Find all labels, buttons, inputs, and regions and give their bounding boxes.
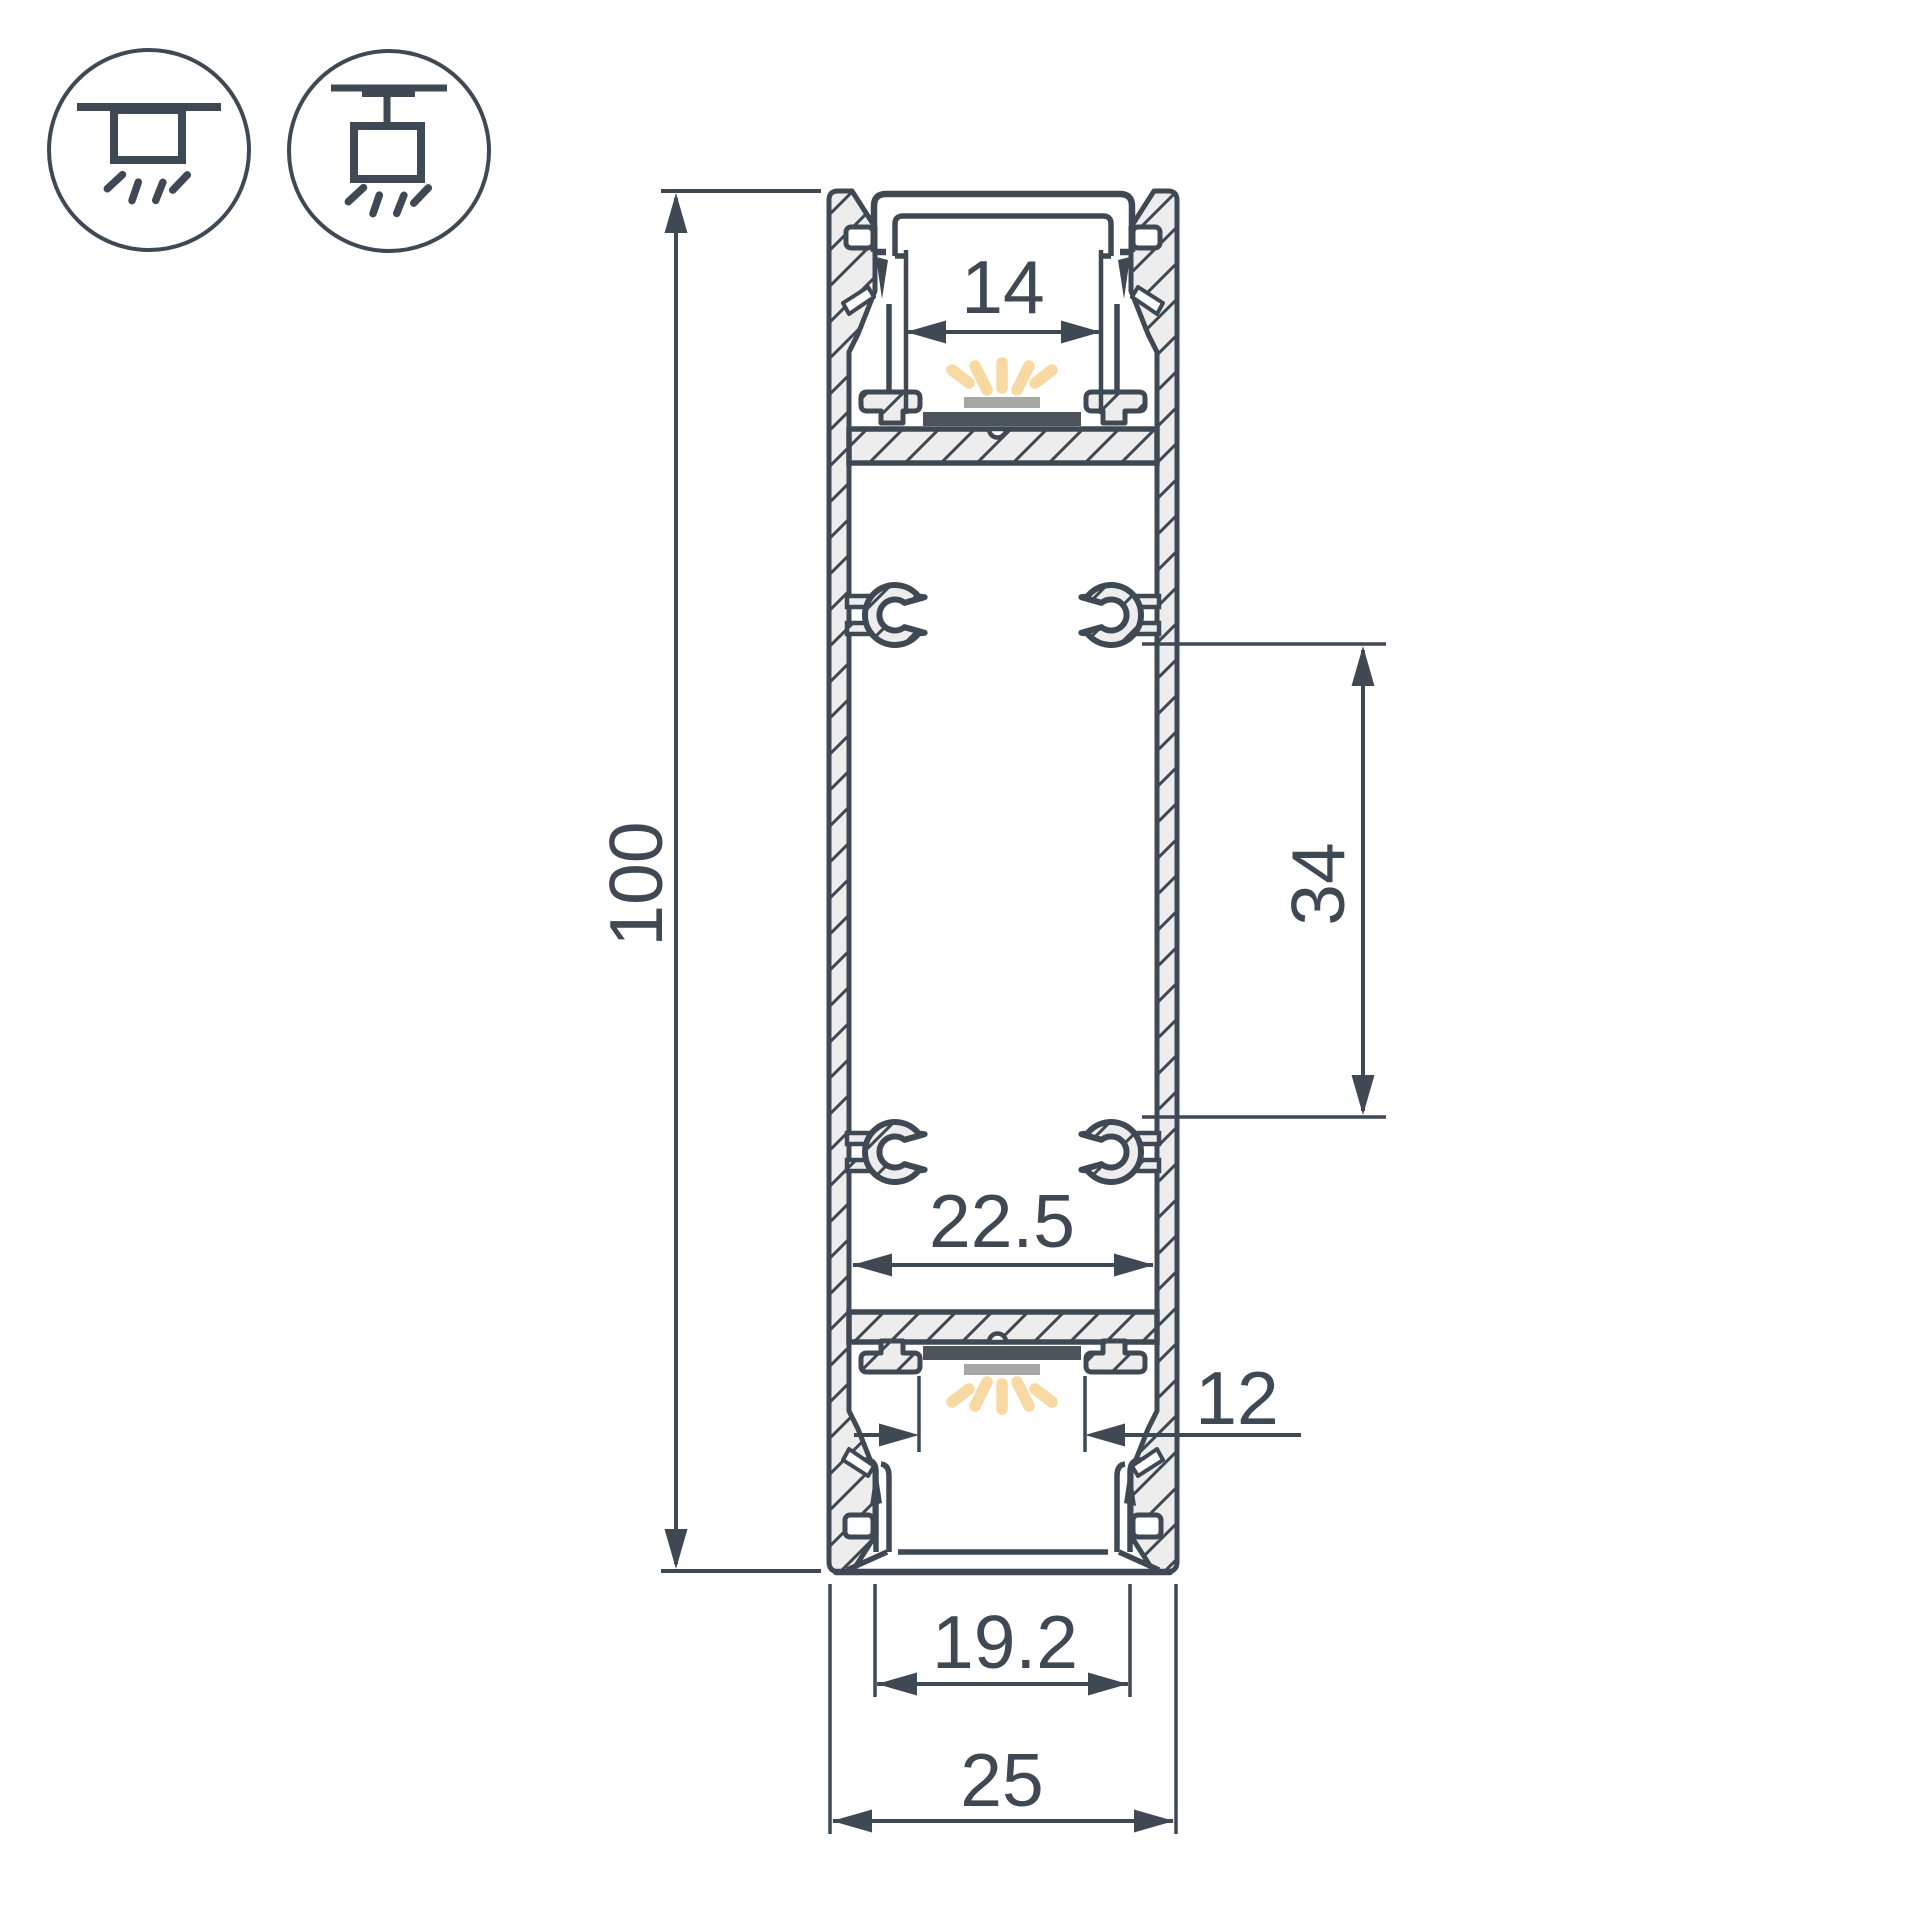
svg-text:100: 100 [594,821,678,946]
svg-text:12: 12 [1195,1356,1278,1440]
svg-text:14: 14 [961,245,1044,329]
svg-text:34: 34 [1276,842,1360,925]
svg-text:19.2: 19.2 [932,1600,1078,1684]
svg-text:25: 25 [960,1738,1043,1822]
svg-text:22.5: 22.5 [929,1179,1075,1263]
